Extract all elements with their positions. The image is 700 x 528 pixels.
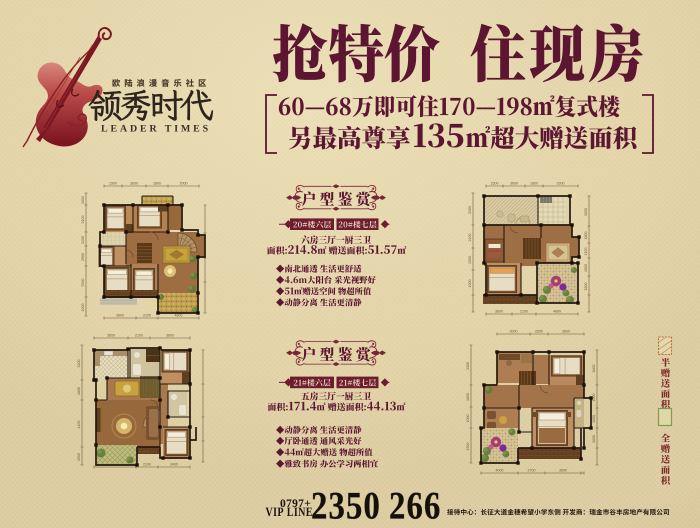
svg-text:1500: 1500 xyxy=(109,182,117,186)
svg-text:1000: 1000 xyxy=(81,196,85,204)
svg-text:4400: 4400 xyxy=(77,421,81,429)
svg-text:2100: 2100 xyxy=(584,248,588,256)
svg-text:1800: 1800 xyxy=(153,182,161,186)
svg-text:2800: 2800 xyxy=(584,264,588,272)
svg-text:2100: 2100 xyxy=(143,314,151,318)
svg-text:3600: 3600 xyxy=(510,182,518,186)
svg-text:1800: 1800 xyxy=(77,387,81,395)
svg-text:3000: 3000 xyxy=(584,208,588,216)
svg-text:1500: 1500 xyxy=(584,283,588,291)
svg-text:2500: 2500 xyxy=(535,330,543,334)
svg-text:4800: 4800 xyxy=(175,314,183,318)
svg-text:3600: 3600 xyxy=(559,469,567,473)
svg-text:3300: 3300 xyxy=(77,360,81,368)
svg-text:2100: 2100 xyxy=(135,334,143,338)
svg-text:2100: 2100 xyxy=(143,463,151,467)
svg-text:4000: 4000 xyxy=(496,469,504,473)
svg-text:1500: 1500 xyxy=(77,453,81,461)
svg-text:3000: 3000 xyxy=(510,330,518,334)
svg-text:4800: 4800 xyxy=(553,310,561,314)
svg-text:1500: 1500 xyxy=(468,256,472,264)
svg-text:1000: 1000 xyxy=(466,415,470,423)
svg-text:1500: 1500 xyxy=(491,182,499,186)
svg-text:2700: 2700 xyxy=(528,469,536,473)
svg-text:1600: 1600 xyxy=(592,415,596,423)
svg-text:1800: 1800 xyxy=(466,393,470,401)
svg-text:3800: 3800 xyxy=(166,334,174,338)
svg-text:1800: 1800 xyxy=(530,182,538,186)
svg-text:4000: 4000 xyxy=(81,304,85,312)
svg-text:2400: 2400 xyxy=(468,234,472,242)
svg-text:5100: 5100 xyxy=(81,216,85,224)
svg-text:2100: 2100 xyxy=(520,310,528,314)
svg-text:3400: 3400 xyxy=(170,463,178,467)
svg-text:2000: 2000 xyxy=(180,182,188,186)
svg-text:3000: 3000 xyxy=(592,435,596,443)
svg-text:3600: 3600 xyxy=(130,182,138,186)
svg-text:3000: 3000 xyxy=(592,365,596,373)
svg-text:5300: 5300 xyxy=(81,279,85,287)
svg-text:1800: 1800 xyxy=(584,232,588,240)
svg-text:3600: 3600 xyxy=(495,310,503,314)
svg-text:2900: 2900 xyxy=(81,253,85,261)
svg-text:3600: 3600 xyxy=(562,330,570,334)
svg-text:4500: 4500 xyxy=(466,443,470,451)
svg-text:2200: 2200 xyxy=(81,236,85,244)
svg-text:3300: 3300 xyxy=(468,206,472,214)
svg-text:3300: 3300 xyxy=(466,362,470,370)
svg-text:4000: 4000 xyxy=(468,280,472,288)
svg-text:3600: 3600 xyxy=(107,334,115,338)
svg-text:3300: 3300 xyxy=(557,182,565,186)
svg-text:3600: 3600 xyxy=(116,314,124,318)
